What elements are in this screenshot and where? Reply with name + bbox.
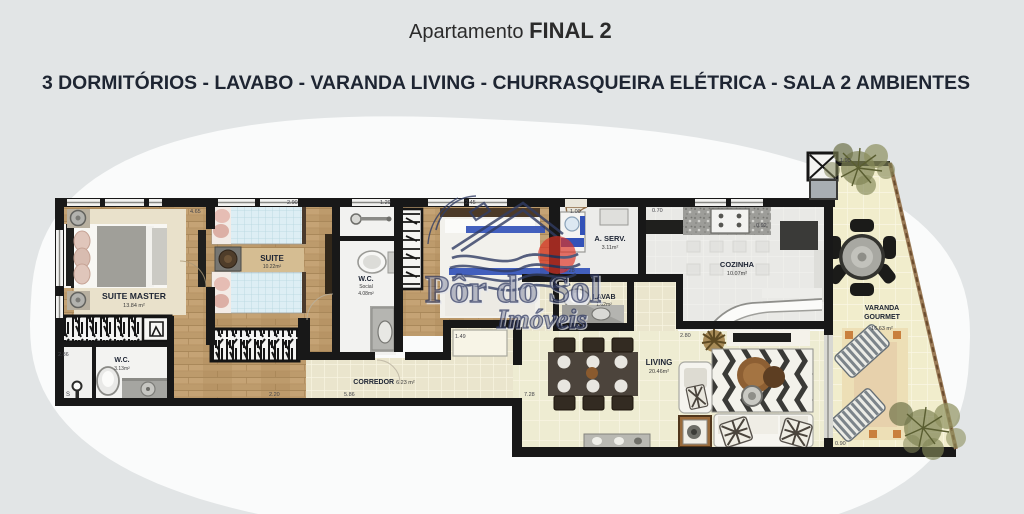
svg-text:VARANDA: VARANDA	[865, 305, 899, 312]
svg-text:3.11m²: 3.11m²	[602, 245, 619, 251]
svg-text:2.86: 2.86	[58, 352, 69, 358]
svg-text:0.92: 0.92	[756, 223, 767, 229]
svg-text:1.90: 1.90	[840, 158, 851, 164]
svg-text:GOURMET: GOURMET	[864, 314, 901, 321]
svg-text:1.49: 1.49	[455, 334, 466, 340]
svg-text:Imóveis: Imóveis	[496, 304, 587, 334]
svg-text:20.46m²: 20.46m²	[649, 369, 669, 375]
svg-text:1.00: 1.00	[570, 209, 581, 215]
svg-text:2.80: 2.80	[680, 333, 691, 339]
svg-text:2.45: 2.45	[465, 200, 476, 206]
svg-text:A. SERV.: A. SERV.	[594, 234, 625, 243]
svg-text:0.90: 0.90	[835, 441, 846, 447]
svg-text:1.29: 1.29	[380, 200, 391, 206]
svg-text:10.07m²: 10.07m²	[727, 271, 747, 277]
svg-text:S: S	[66, 392, 70, 398]
svg-text:Apartamento FINAL 2: Apartamento FINAL 2	[409, 18, 612, 43]
svg-text:7.28: 7.28	[524, 392, 535, 398]
svg-text:3 DORMITÓRIOS - LAVABO - VARAN: 3 DORMITÓRIOS - LAVABO - VARANDA LIVING …	[42, 70, 970, 94]
svg-text:5.86: 5.86	[344, 392, 355, 398]
svg-text:SUITE: SUITE	[260, 254, 284, 263]
svg-text:0.70: 0.70	[652, 208, 663, 214]
svg-text:13.84 m²: 13.84 m²	[123, 303, 145, 309]
svg-text:2.20: 2.20	[269, 392, 280, 398]
svg-text:16.63 m²: 16.63 m²	[871, 326, 893, 332]
svg-text:4.08m²: 4.08m²	[358, 291, 374, 297]
svg-text:Social: Social	[359, 284, 373, 290]
svg-text:3.13m²: 3.13m²	[114, 366, 130, 372]
svg-text:COZINHA: COZINHA	[720, 260, 755, 269]
svg-text:W.C.: W.C.	[358, 276, 373, 283]
svg-text:4.65: 4.65	[190, 209, 201, 215]
svg-text:2.90: 2.90	[287, 200, 298, 206]
svg-text:10.22m²: 10.22m²	[263, 264, 282, 270]
svg-text:W.C.: W.C.	[114, 357, 129, 364]
svg-text:SUITE MASTER: SUITE MASTER	[102, 291, 166, 301]
svg-text:CORREDOR 6.23 m²: CORREDOR 6.23 m²	[353, 379, 415, 386]
svg-text:LIVING: LIVING	[646, 358, 673, 367]
